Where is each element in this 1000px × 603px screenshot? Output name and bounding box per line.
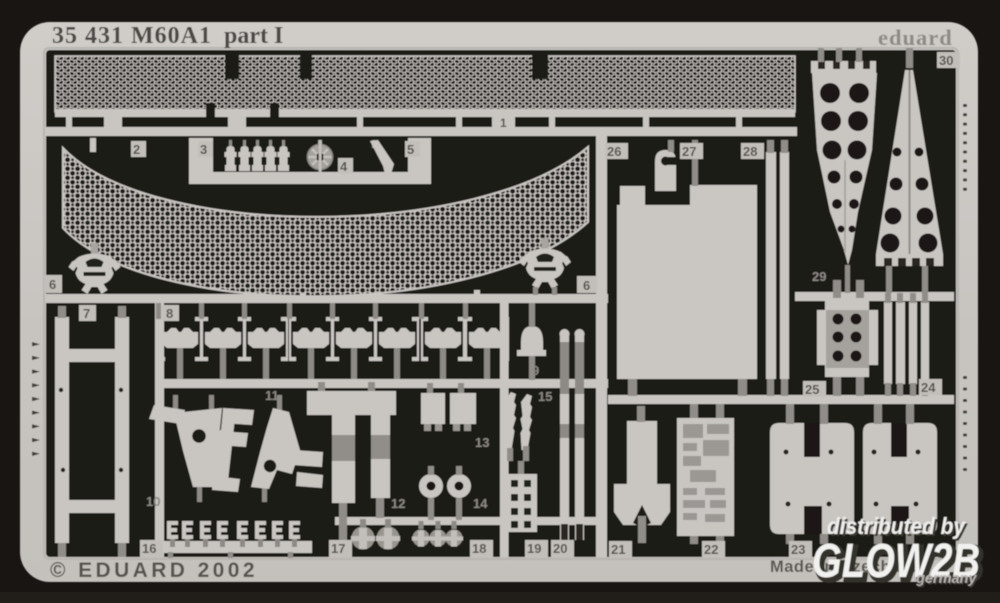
svg-text:22: 22: [704, 542, 718, 557]
svg-text:24: 24: [921, 380, 936, 395]
svg-text:7: 7: [83, 306, 90, 321]
svg-text:germany: germany: [915, 571, 977, 587]
svg-text:10: 10: [146, 494, 160, 509]
svg-text:21: 21: [611, 542, 625, 557]
svg-text:20: 20: [553, 541, 567, 556]
svg-text:12: 12: [391, 496, 405, 511]
svg-text:27: 27: [682, 144, 696, 159]
svg-text:13: 13: [475, 435, 489, 450]
svg-text:14: 14: [473, 496, 488, 511]
svg-text:part I: part I: [224, 23, 283, 49]
svg-text:4: 4: [340, 159, 348, 174]
svg-text:5: 5: [407, 142, 414, 157]
svg-text:15: 15: [538, 389, 552, 404]
svg-text:11: 11: [265, 388, 279, 403]
svg-text:17: 17: [331, 541, 345, 556]
svg-text:© EDUARD 2002: © EDUARD 2002: [50, 559, 258, 582]
svg-text:2: 2: [133, 142, 140, 157]
svg-text:30: 30: [939, 53, 953, 68]
svg-text:9: 9: [532, 363, 539, 378]
svg-text:1: 1: [500, 116, 507, 130]
svg-text:18: 18: [472, 541, 486, 556]
svg-text:26: 26: [607, 144, 621, 159]
svg-text:6: 6: [49, 277, 56, 292]
svg-text:eduard: eduard: [878, 25, 953, 50]
svg-text:19: 19: [527, 541, 541, 556]
svg-text:8: 8: [166, 306, 173, 321]
svg-text:25: 25: [805, 382, 819, 397]
svg-text:16: 16: [142, 541, 156, 556]
svg-text:28: 28: [743, 144, 757, 159]
svg-text:6: 6: [583, 278, 590, 293]
svg-text:29: 29: [812, 269, 826, 284]
svg-text:35 431 M60A1: 35 431 M60A1: [52, 23, 212, 49]
svg-text:3: 3: [200, 142, 207, 157]
svg-text:23: 23: [791, 542, 805, 557]
